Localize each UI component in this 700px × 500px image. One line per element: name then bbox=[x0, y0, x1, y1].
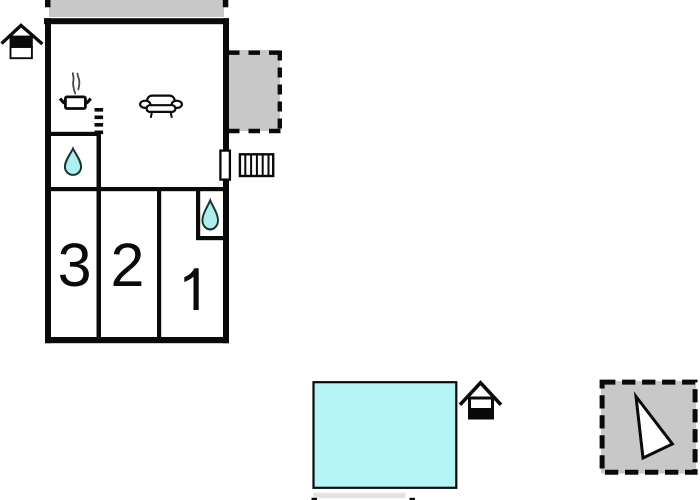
svg-text:2: 2 bbox=[111, 231, 145, 299]
svg-text:3: 3 bbox=[58, 231, 92, 299]
